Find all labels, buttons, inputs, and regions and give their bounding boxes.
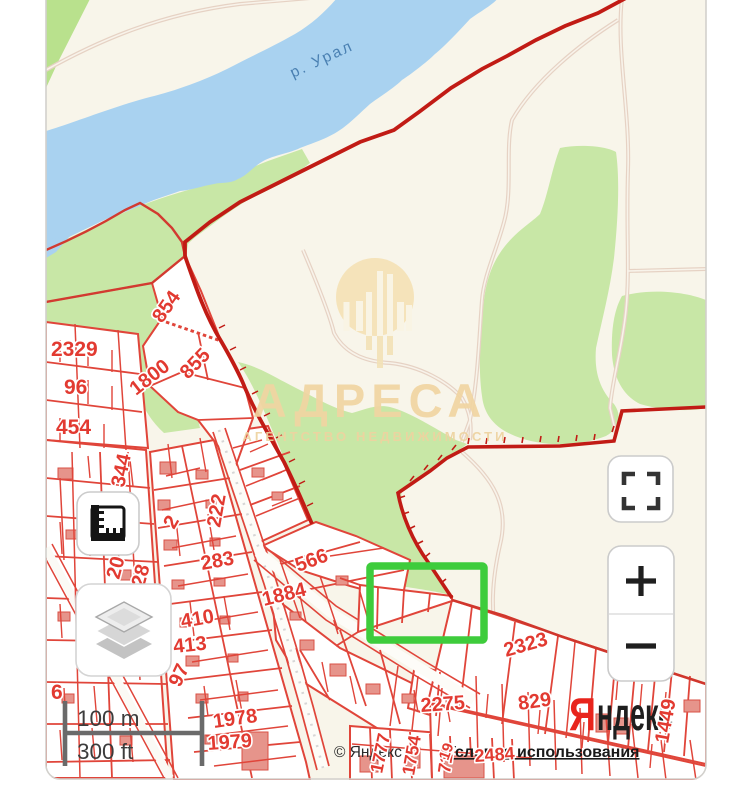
svg-text:АДРЕСА: АДРЕСА [253, 374, 488, 427]
svg-text:2275: 2275 [420, 692, 466, 717]
svg-text:96: 96 [64, 376, 87, 399]
svg-text:1979: 1979 [207, 730, 253, 755]
svg-text:100 m: 100 m [77, 706, 140, 731]
svg-text:454: 454 [56, 416, 91, 439]
svg-text:413: 413 [172, 633, 207, 658]
svg-text:829: 829 [517, 689, 553, 715]
svg-text:6: 6 [51, 681, 63, 704]
svg-text:АГЕНТСТВО НЕДВИЖИМОСТИ: АГЕНТСТВО НЕДВИЖИМОСТИ [242, 429, 507, 444]
svg-text:Я: Я [569, 688, 596, 740]
svg-text:2329: 2329 [51, 338, 98, 361]
svg-text:2484: 2484 [474, 743, 515, 766]
svg-text:300 ft: 300 ft [77, 739, 134, 764]
